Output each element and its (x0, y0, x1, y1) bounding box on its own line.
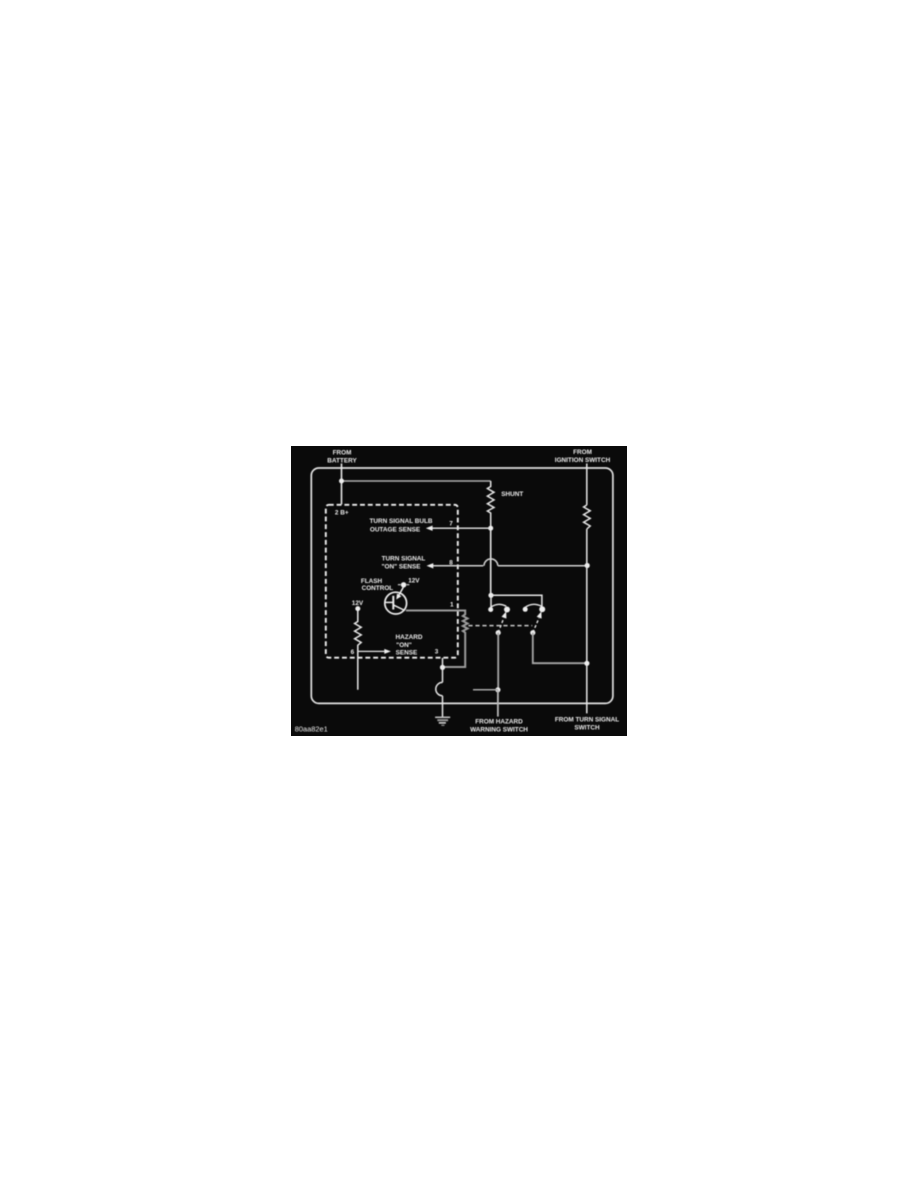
svg-text:FROM: FROM (333, 450, 352, 457)
svg-text:SENSE: SENSE (396, 649, 418, 656)
svg-text:3: 3 (435, 649, 439, 656)
svg-text:FROM HAZARD: FROM HAZARD (475, 718, 523, 725)
svg-text:7: 7 (449, 520, 453, 527)
svg-text:12V: 12V (408, 577, 420, 584)
svg-text:80aa82e1: 80aa82e1 (295, 724, 328, 733)
svg-text:SWITCH: SWITCH (574, 725, 600, 732)
svg-text:6: 6 (351, 649, 355, 656)
svg-text:WARNING SWITCH: WARNING SWITCH (470, 727, 528, 734)
svg-text:"ON" SENSE: "ON" SENSE (381, 563, 421, 570)
svg-text:1: 1 (450, 602, 454, 609)
svg-text:BATTERY: BATTERY (327, 458, 357, 465)
svg-text:IGNITION SWITCH: IGNITION SWITCH (555, 457, 611, 464)
svg-text:FROM: FROM (573, 449, 592, 456)
svg-text:FLASH: FLASH (361, 578, 383, 585)
svg-text:SHUNT: SHUNT (501, 491, 523, 498)
svg-text:TURN SIGNAL BULB: TURN SIGNAL BULB (369, 518, 432, 525)
svg-text:FROM TURN SIGNAL: FROM TURN SIGNAL (555, 717, 619, 724)
svg-text:HAZARD: HAZARD (396, 634, 423, 641)
svg-text:CONTROL: CONTROL (362, 585, 394, 592)
svg-text:2 B+: 2 B+ (335, 510, 349, 517)
svg-text:OUTAGE SENSE: OUTAGE SENSE (370, 526, 421, 533)
svg-text:TURN SIGNAL: TURN SIGNAL (382, 556, 426, 563)
svg-text:"ON": "ON" (396, 642, 412, 649)
svg-text:12V: 12V (352, 600, 364, 607)
